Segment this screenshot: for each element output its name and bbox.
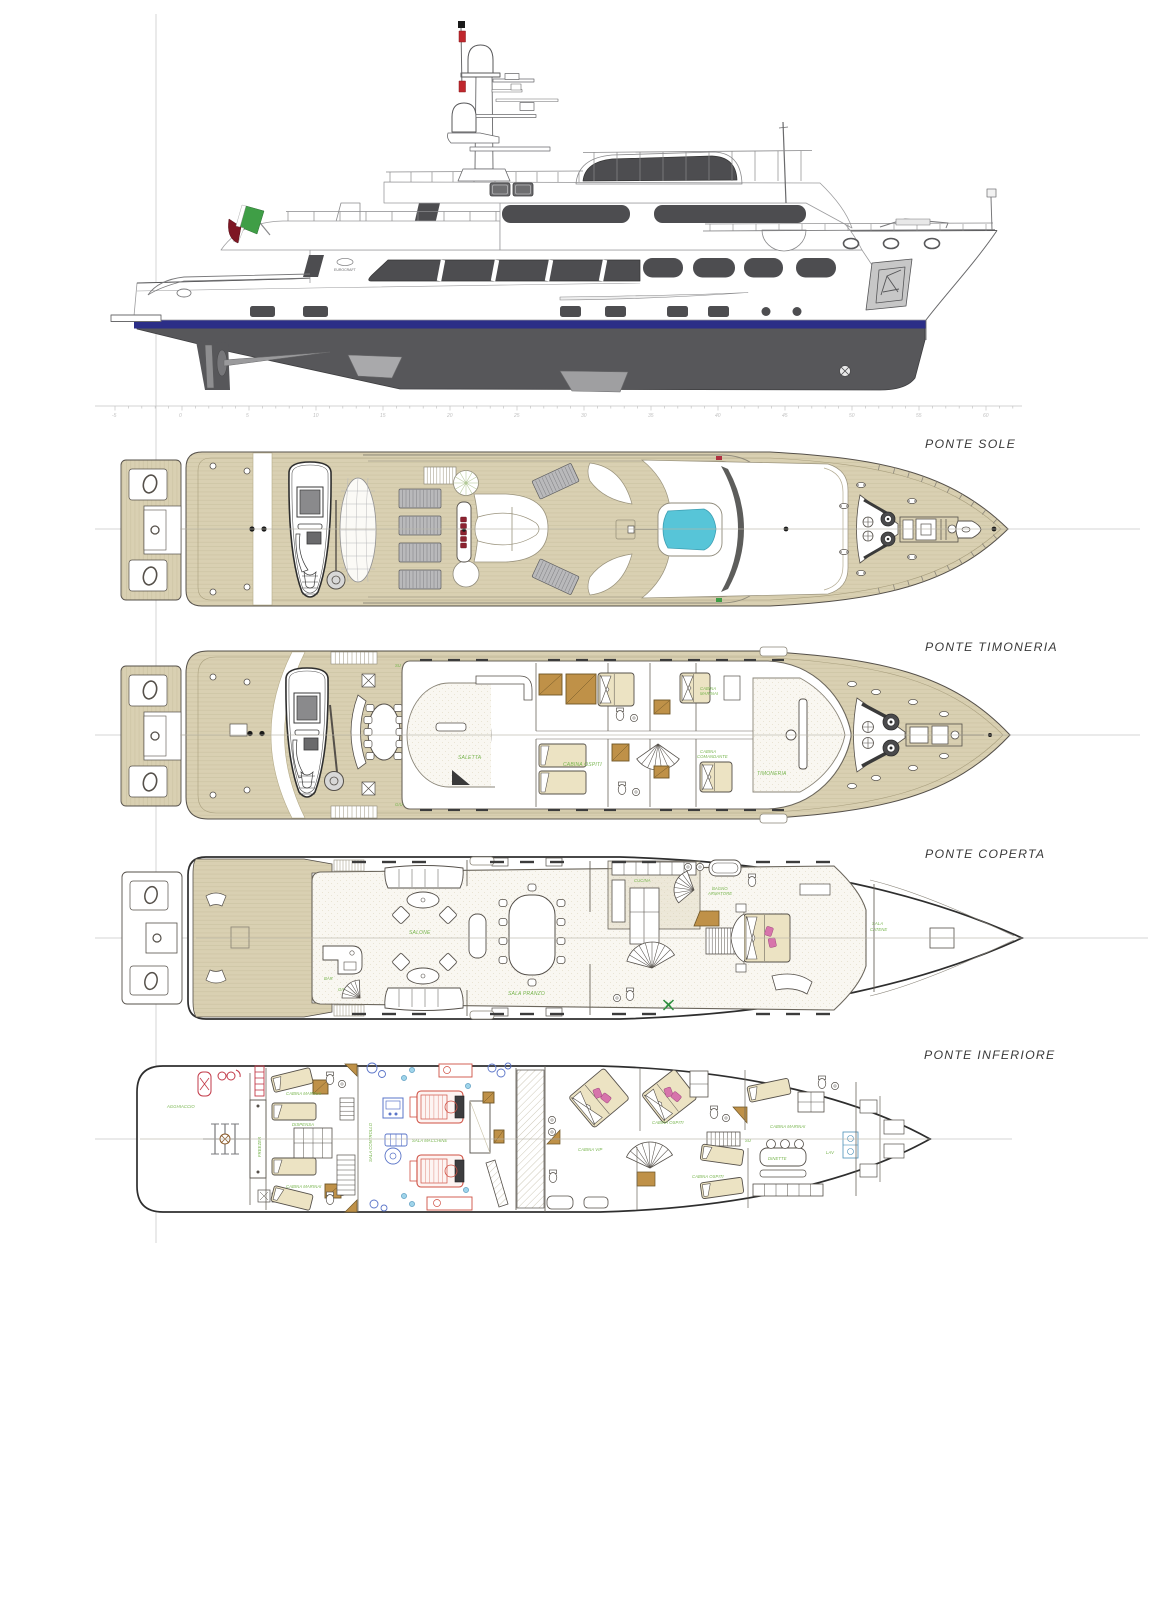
svg-text:40: 40	[715, 413, 721, 419]
svg-text:50: 50	[849, 413, 855, 419]
svg-text:CABINA OSPITI: CABINA OSPITI	[563, 762, 602, 768]
svg-text:SALA CONTROLLO: SALA CONTROLLO	[368, 1122, 373, 1162]
svg-text:35: 35	[648, 413, 654, 419]
svg-text:ARMATORE: ARMATORE	[707, 891, 732, 896]
svg-text:PONTE SOLE: PONTE SOLE	[925, 437, 1016, 451]
svg-text:TIMONERIA: TIMONERIA	[757, 771, 787, 777]
svg-text:CABINA OSPITI: CABINA OSPITI	[692, 1174, 724, 1179]
svg-text:SALONE: SALONE	[409, 930, 431, 936]
svg-text:LAV: LAV	[826, 1150, 835, 1155]
svg-text:25: 25	[513, 413, 520, 419]
svg-text:CABINA VIP: CABINA VIP	[578, 1147, 602, 1152]
svg-text:SALETTA: SALETTA	[458, 755, 482, 761]
svg-text:CABINA OSPITI: CABINA OSPITI	[652, 1120, 684, 1125]
svg-text:10: 10	[313, 413, 319, 419]
svg-text:AGGHIACCIO: AGGHIACCIO	[166, 1104, 195, 1109]
svg-text:COMANDANTE: COMANDANTE	[697, 754, 728, 759]
svg-text:CATENE: CATENE	[870, 927, 887, 932]
svg-text:MARINAI: MARINAI	[700, 691, 719, 696]
svg-text:EUROCRAFT: EUROCRAFT	[334, 268, 357, 272]
svg-text:0: 0	[179, 413, 182, 419]
svg-text:GIU: GIU	[395, 802, 404, 807]
svg-text:20: 20	[446, 413, 453, 419]
svg-text:5: 5	[246, 413, 249, 419]
svg-text:CABINA MARINAI: CABINA MARINAI	[286, 1184, 322, 1189]
svg-text:DISPENSA: DISPENSA	[292, 1122, 314, 1127]
svg-text:PONTE COPERTA: PONTE COPERTA	[925, 847, 1045, 861]
svg-text:CABINA MARINAI: CABINA MARINAI	[286, 1091, 322, 1096]
svg-text:-5: -5	[112, 413, 117, 419]
svg-text:45: 45	[782, 413, 788, 419]
svg-text:CABINA MARINAI: CABINA MARINAI	[770, 1124, 806, 1129]
svg-text:CUCINA: CUCINA	[634, 878, 651, 883]
svg-text:PONTE INFERIORE: PONTE INFERIORE	[924, 1048, 1055, 1062]
svg-text:15: 15	[380, 413, 386, 419]
svg-text:BAR: BAR	[324, 976, 333, 981]
svg-text:55: 55	[916, 413, 922, 419]
svg-text:DINETTE: DINETTE	[768, 1156, 787, 1161]
svg-text:SALA PRANZO: SALA PRANZO	[508, 991, 545, 997]
svg-text:30: 30	[581, 413, 587, 419]
svg-text:FREEZER: FREEZER	[257, 1137, 262, 1157]
svg-text:PONTE TIMONERIA: PONTE TIMONERIA	[925, 640, 1058, 654]
svg-text:60: 60	[983, 413, 989, 419]
svg-text:SU: SU	[395, 663, 402, 668]
